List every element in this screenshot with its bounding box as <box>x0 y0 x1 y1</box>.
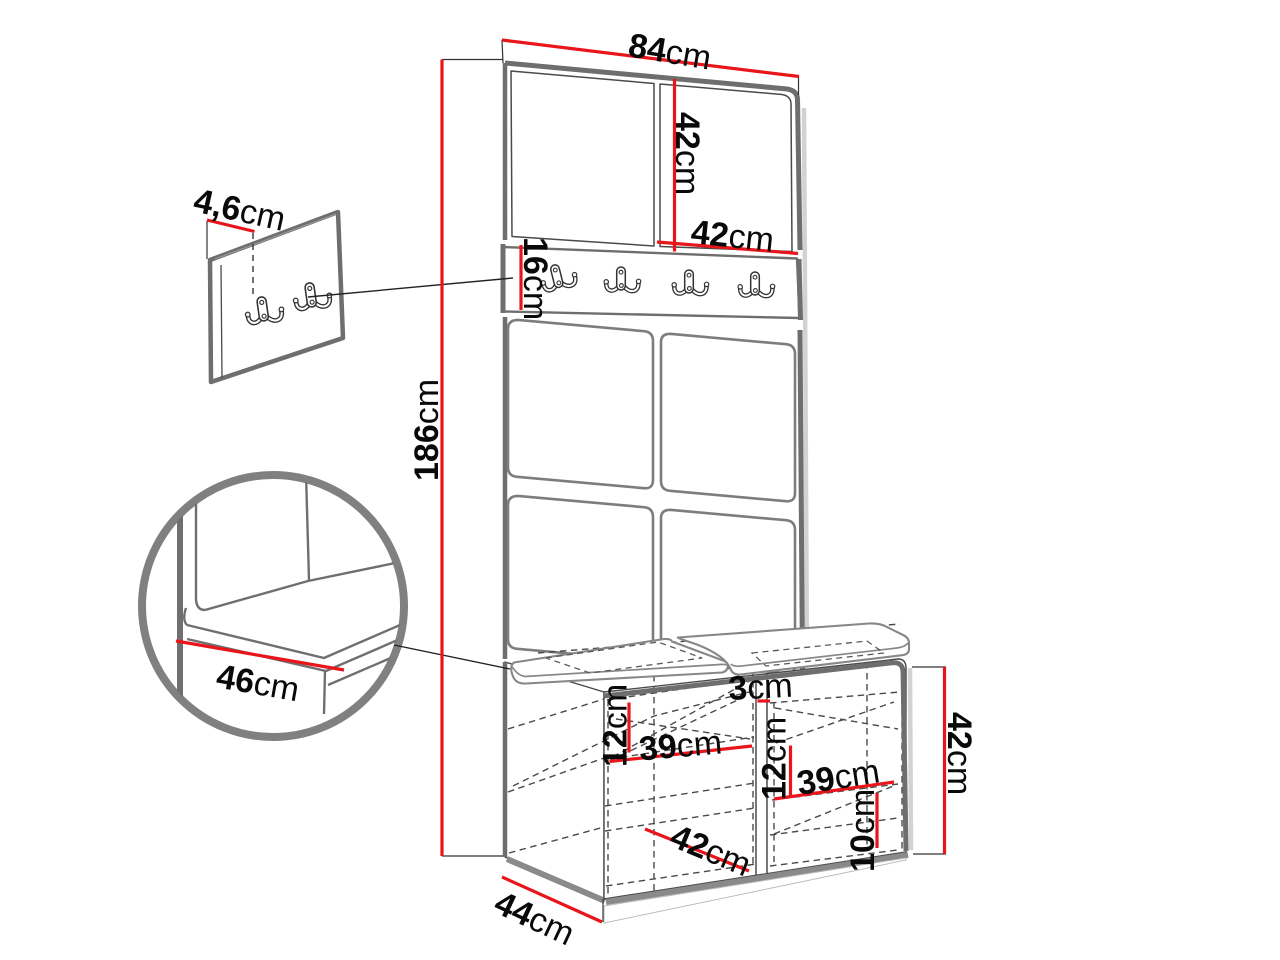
svg-text:42cm: 42cm <box>940 712 978 795</box>
svg-text:12cm: 12cm <box>597 684 635 767</box>
svg-text:186cm: 186cm <box>408 379 446 481</box>
svg-text:12cm: 12cm <box>756 717 794 800</box>
svg-text:10cm: 10cm <box>844 789 882 872</box>
svg-text:16cm: 16cm <box>516 237 554 320</box>
svg-text:3cm: 3cm <box>727 667 793 708</box>
svg-text:39cm: 39cm <box>637 723 723 768</box>
svg-text:42cm: 42cm <box>668 112 706 195</box>
